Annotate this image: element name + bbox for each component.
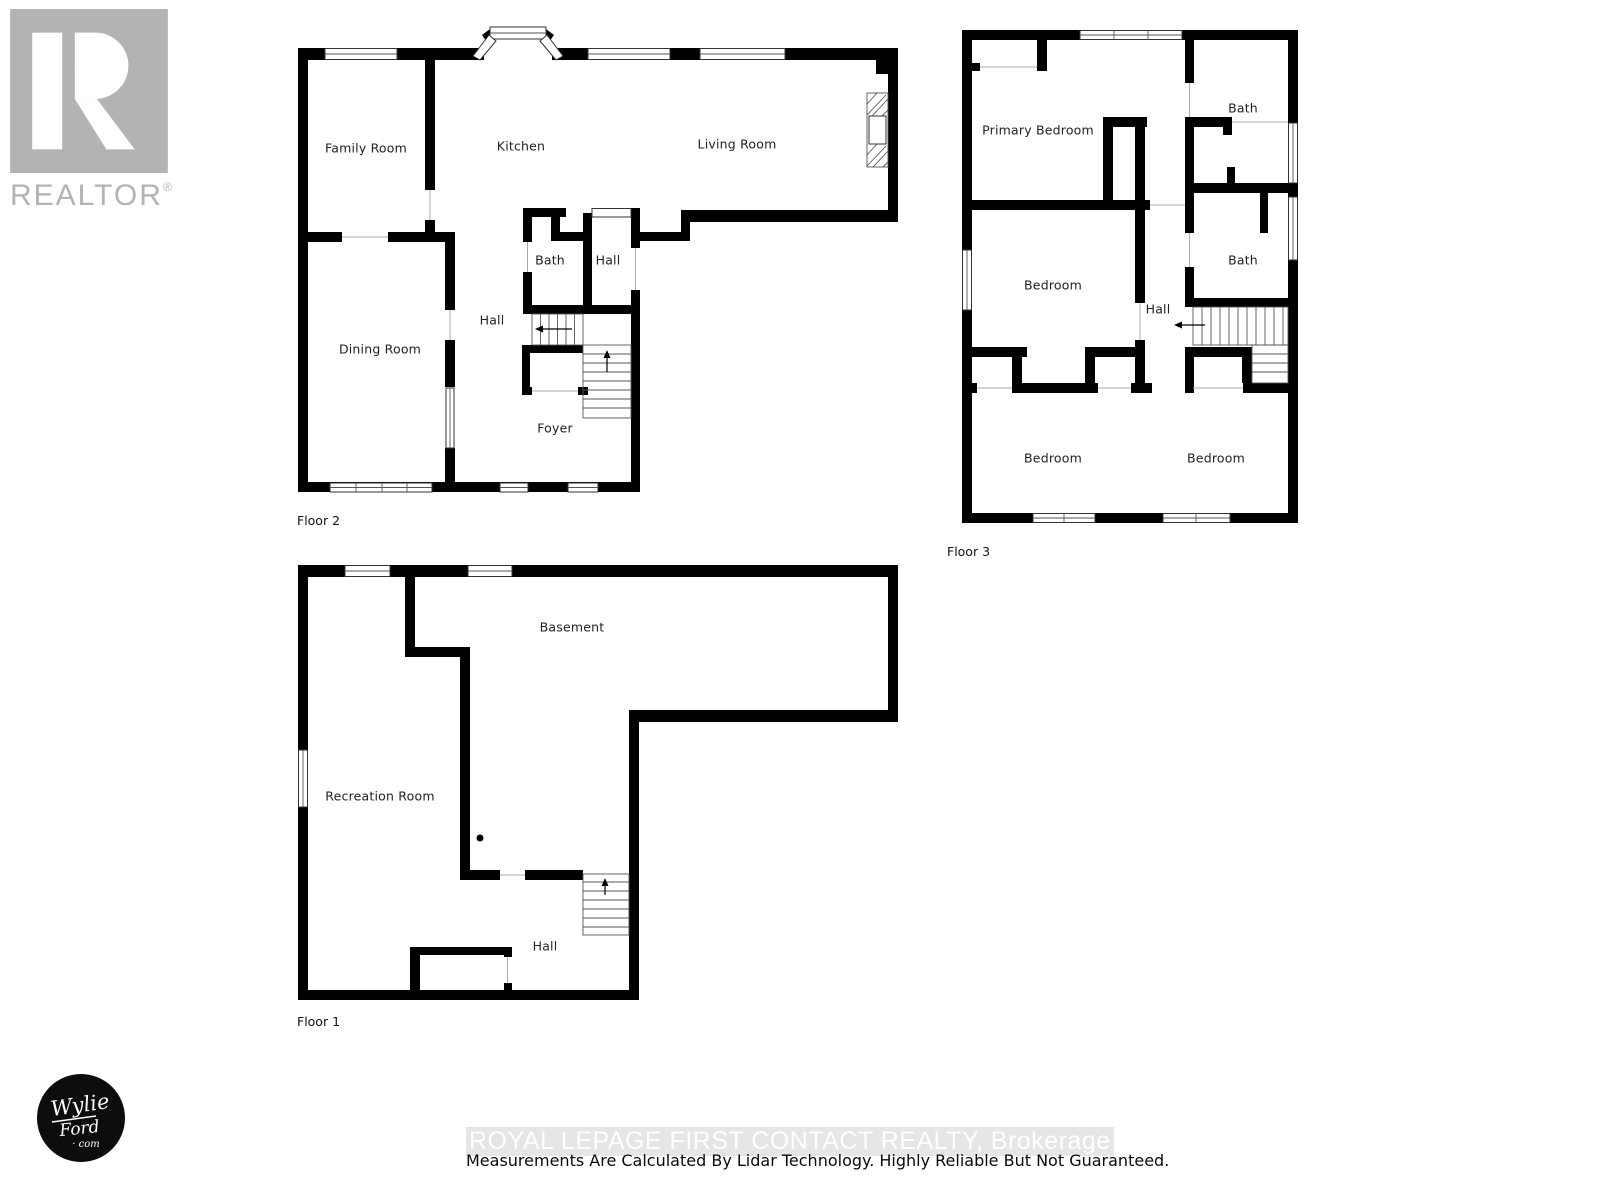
room-label-hall-floor1: Hall xyxy=(533,939,558,954)
room-label-family-room: Family Room xyxy=(325,141,407,156)
wylie-ford-badge: Wylie Ford · com xyxy=(36,1072,126,1164)
room-label-bath-upper-floor3: Bath xyxy=(1228,101,1258,116)
room-label-hall-lower-floor2: Hall xyxy=(480,313,505,328)
floor-1-door-openings xyxy=(500,875,525,983)
fireplace xyxy=(867,93,888,167)
support-post-dot xyxy=(477,835,484,842)
room-label-recreation-room: Recreation Room xyxy=(325,789,434,804)
badge-line3: · com xyxy=(72,1139,99,1150)
room-label-hall-upper-floor2: Hall xyxy=(596,253,621,268)
floor-1-caption: Floor 1 xyxy=(297,1014,340,1029)
floor-2-stairs xyxy=(532,314,631,418)
room-label-dining-room: Dining Room xyxy=(339,342,421,357)
room-label-bath-floor2: Bath xyxy=(535,253,565,268)
floor-3-caption: Floor 3 xyxy=(947,544,990,559)
measurement-disclaimer: Measurements Are Calculated By Lidar Tec… xyxy=(466,1151,1169,1170)
room-label-bedroom-mid: Bedroom xyxy=(1024,278,1082,293)
realtor-r-icon xyxy=(10,9,168,173)
realtor-wordmark: REALTOR® xyxy=(10,181,182,211)
floorplan-page: REALTOR® xyxy=(0,0,1600,1200)
floor-1-stairs xyxy=(583,874,629,935)
floor-2-caption: Floor 2 xyxy=(297,513,340,528)
room-label-kitchen: Kitchen xyxy=(497,139,545,154)
room-label-bedroom-bottom-left: Bedroom xyxy=(1024,451,1082,466)
room-label-bath-lower-floor3: Bath xyxy=(1228,253,1258,268)
room-label-basement: Basement xyxy=(540,620,605,635)
realtor-logo: REALTOR® xyxy=(10,9,182,211)
room-label-foyer: Foyer xyxy=(537,421,573,436)
room-label-living-room: Living Room xyxy=(698,137,777,152)
room-label-primary-bedroom: Primary Bedroom xyxy=(982,123,1094,138)
room-label-hall-floor3: Hall xyxy=(1146,302,1171,317)
room-label-bedroom-bottom-right: Bedroom xyxy=(1187,451,1245,466)
